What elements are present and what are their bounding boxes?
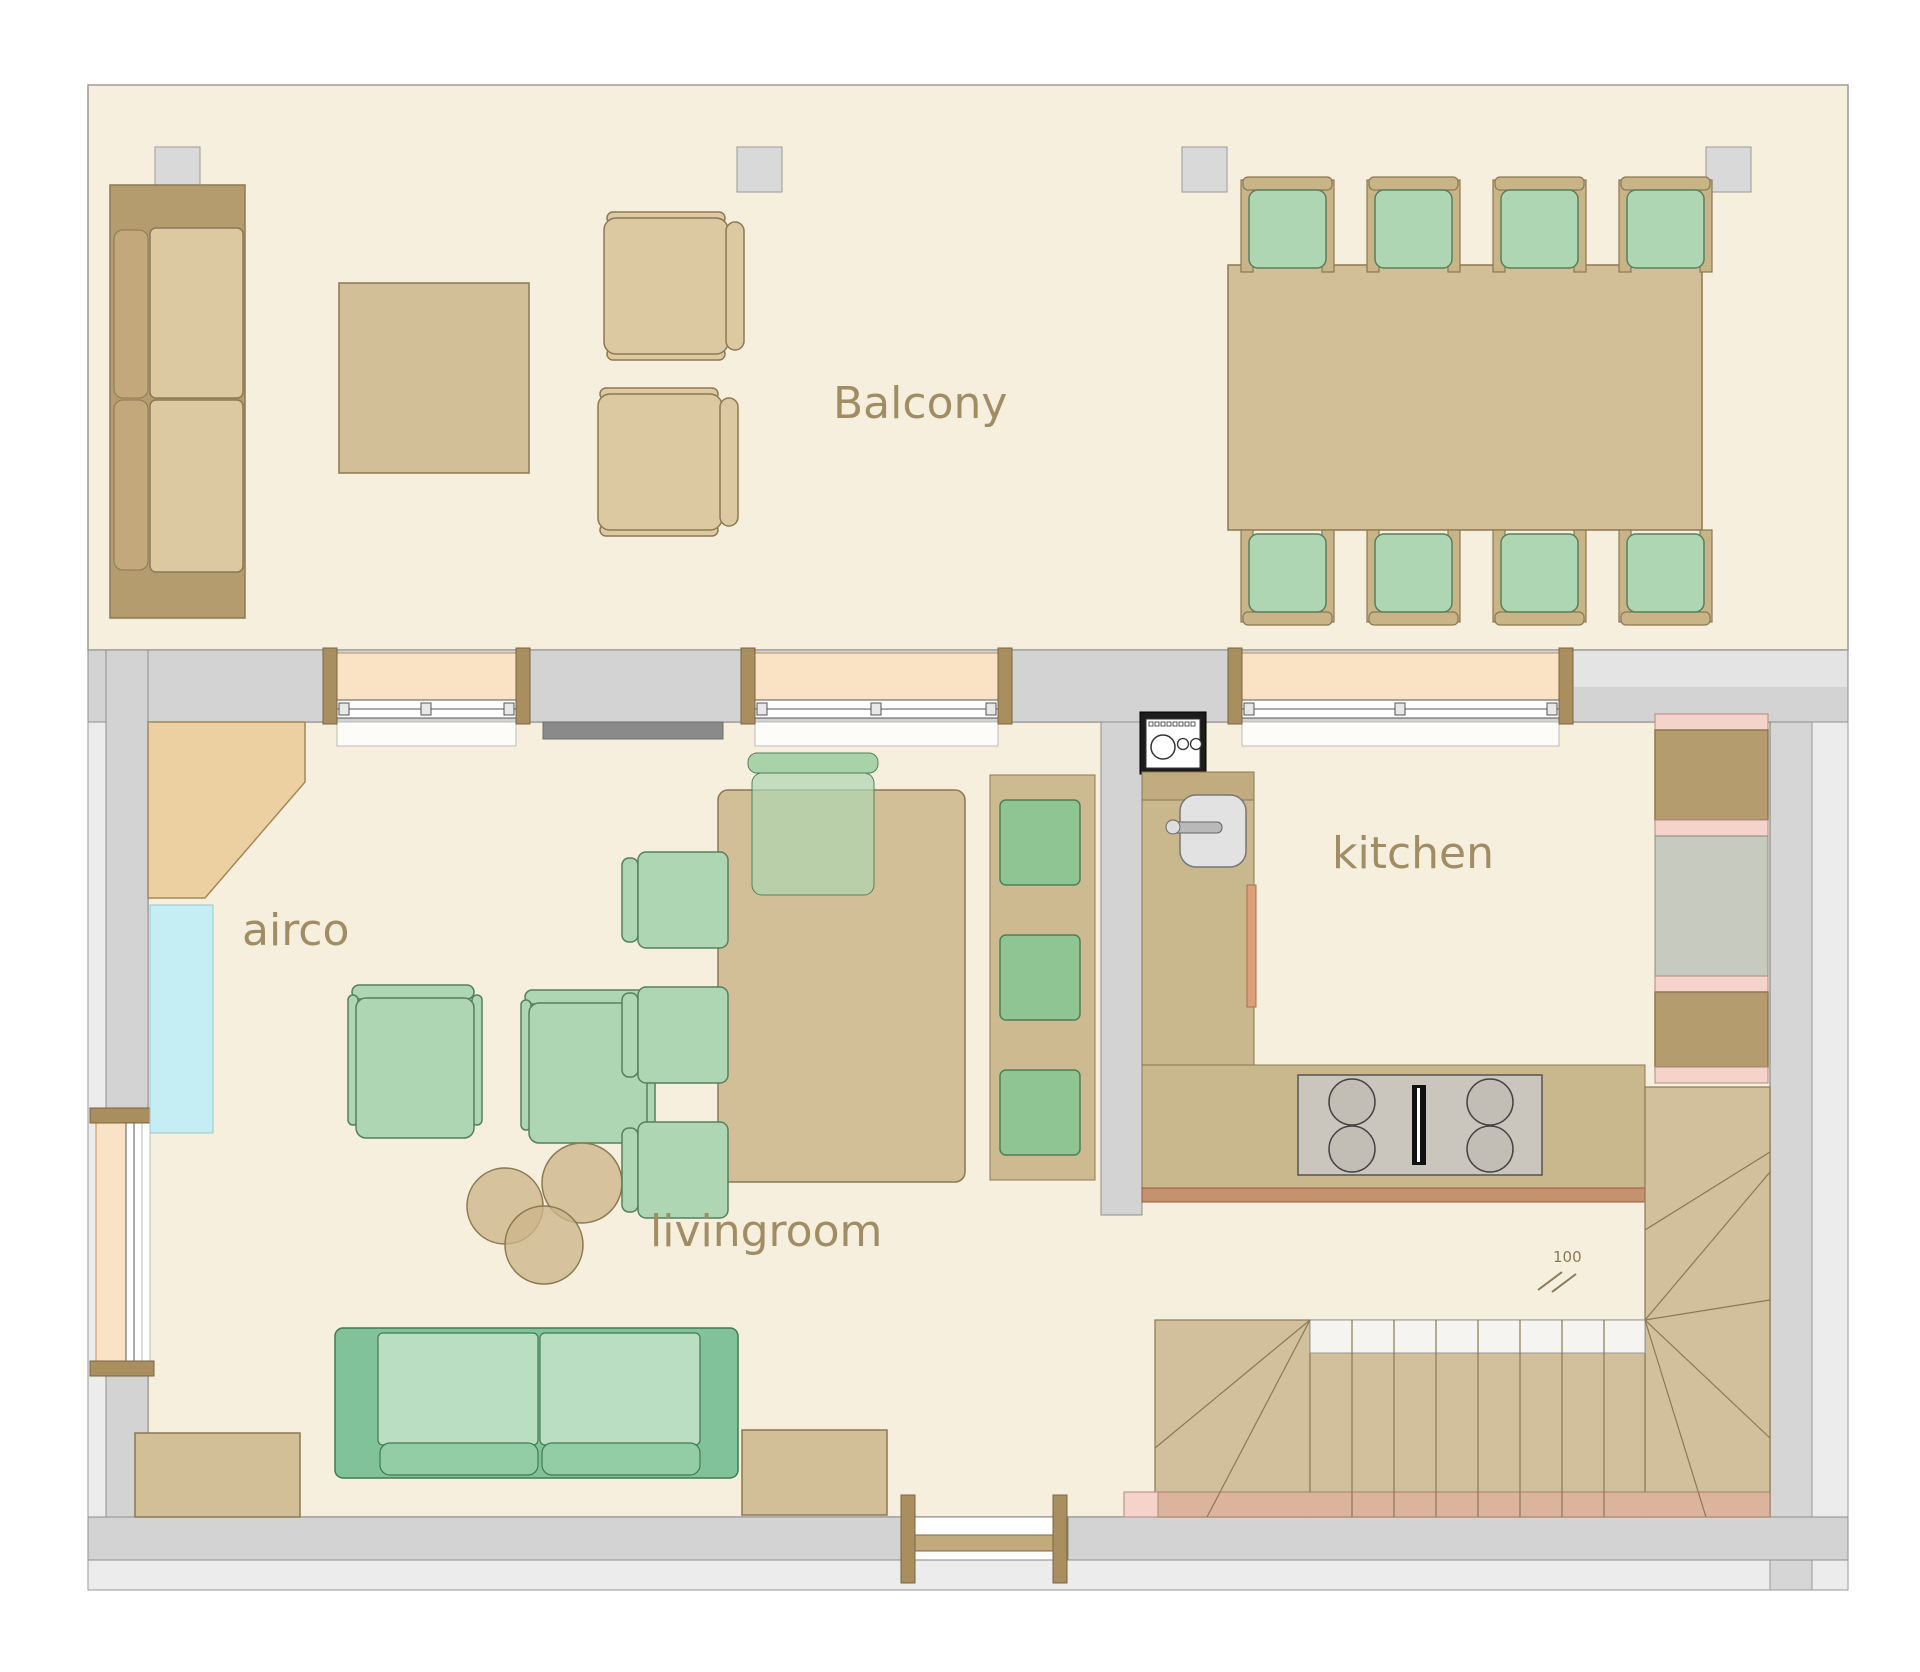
- airco-label: airco: [242, 905, 349, 956]
- chair-back: [622, 993, 638, 1077]
- glazing-connector: [871, 703, 881, 715]
- floor-plan-svg: 100 Balcony airco kitchen livingroom: [0, 0, 1920, 1672]
- window-sill-bar: [915, 1535, 1053, 1551]
- living-sofa: [335, 1328, 738, 1478]
- dot: [1149, 722, 1153, 726]
- dot: [1161, 722, 1165, 726]
- cabinet-shelf: [1655, 976, 1768, 992]
- chair-back: [1243, 177, 1332, 190]
- balcony-lounge-chair: [604, 212, 744, 360]
- chair-back: [1621, 177, 1710, 190]
- glazing-connector: [504, 703, 514, 715]
- fridge: [1655, 836, 1768, 976]
- dining-chair: [622, 852, 728, 948]
- chair-back: [748, 753, 878, 773]
- chair-back: [1243, 612, 1332, 625]
- counter-trim: [1247, 885, 1256, 1007]
- sofa-seat: [542, 1443, 700, 1475]
- bench-cushion: [1000, 1070, 1080, 1155]
- dining-chair: [1367, 530, 1460, 625]
- burner-icon: [1467, 1079, 1513, 1125]
- airco-unit: [150, 905, 213, 1133]
- stair-winders-left: [1155, 1320, 1310, 1517]
- round-table: [505, 1206, 583, 1284]
- kitchen-appliance: [1140, 712, 1206, 774]
- stair-flight-vertical: [1645, 1087, 1770, 1517]
- chair-seat: [598, 394, 722, 530]
- stove-grill-line: [1417, 1088, 1420, 1162]
- dining-chairs-left: [622, 852, 728, 1218]
- dot: [1179, 722, 1183, 726]
- balcony-sofa-cushion: [150, 400, 243, 572]
- burner-icon: [1467, 1126, 1513, 1172]
- window-threshold: [142, 1123, 150, 1361]
- window-top-1: [323, 648, 530, 746]
- dot: [1167, 722, 1171, 726]
- glazing-connector: [1244, 703, 1254, 715]
- dot: [1191, 722, 1195, 726]
- window-top-3: [1228, 648, 1573, 746]
- window-post: [323, 648, 337, 724]
- side-table: [742, 1430, 887, 1515]
- cabinet-shelf: [1655, 1067, 1768, 1083]
- window-sill: [755, 653, 998, 700]
- balcony-sofa-back: [114, 230, 148, 398]
- chair-seat: [356, 998, 474, 1138]
- chair-back: [720, 398, 738, 526]
- window-post: [1559, 648, 1573, 724]
- chair-seat: [752, 773, 874, 895]
- dining-chair: [1241, 177, 1334, 272]
- chair-seat: [1627, 534, 1704, 612]
- chair-back: [1369, 612, 1458, 625]
- glazing-connector: [339, 703, 349, 715]
- cabinet: [1655, 992, 1768, 1067]
- chair-seat: [638, 1122, 728, 1218]
- chair-seat: [1375, 190, 1452, 268]
- window-sill: [337, 653, 516, 700]
- chair-back: [622, 1128, 638, 1212]
- chair-seat: [638, 987, 728, 1083]
- balcony-sofa-cushion: [150, 228, 243, 398]
- livingroom-label: livingroom: [650, 1206, 882, 1257]
- bench-cushion: [1000, 800, 1080, 885]
- burner-icon: [1329, 1079, 1375, 1125]
- top-wall-light-strip: [1562, 651, 1847, 687]
- stair-level-marker: 100: [1553, 1248, 1582, 1266]
- kitchen-label: kitchen: [1332, 828, 1494, 879]
- window-threshold: [1242, 722, 1559, 746]
- window-threshold: [337, 722, 516, 746]
- kitchen-island: [1142, 1065, 1645, 1202]
- chair-seat: [1249, 190, 1326, 268]
- dial-icon: [1178, 739, 1189, 750]
- glazing-connector: [421, 703, 431, 715]
- right-wall-inner: [1770, 650, 1812, 1590]
- sofa-seat: [380, 1443, 538, 1475]
- window-sill: [96, 1123, 126, 1361]
- armchair: [348, 985, 482, 1138]
- window-post: [901, 1495, 915, 1583]
- stair-base-band: [1155, 1492, 1770, 1517]
- kitchen-counter: [1142, 772, 1256, 1065]
- island-edge: [1142, 1188, 1645, 1202]
- window-threshold: [755, 722, 998, 746]
- window-sill: [1242, 653, 1559, 700]
- balcony-label: Balcony: [833, 378, 1007, 429]
- window-post: [741, 648, 755, 724]
- bench-cushion: [1000, 935, 1080, 1020]
- low-cabinet: [135, 1433, 300, 1517]
- dining-chair: [622, 1122, 728, 1218]
- dining-chair: [1241, 530, 1334, 625]
- dial-icon: [1191, 739, 1202, 750]
- glazing-connector: [1395, 703, 1405, 715]
- glazing-connector: [757, 703, 767, 715]
- dining-chair: [1367, 177, 1460, 272]
- window-left: [90, 1108, 154, 1376]
- chair-back: [1495, 612, 1584, 625]
- stair-pink-marker: [1124, 1492, 1158, 1517]
- dot: [1185, 722, 1189, 726]
- balcony-sofa: [110, 185, 245, 618]
- chair-seat: [1375, 534, 1452, 612]
- dining-chair: [1493, 177, 1586, 272]
- dining-bench: [990, 775, 1095, 1180]
- dining-chair: [1619, 177, 1712, 272]
- window-post: [1053, 1495, 1067, 1583]
- window-post: [1228, 648, 1242, 724]
- window-post: [516, 648, 530, 724]
- balcony-square-table: [339, 283, 529, 473]
- dining-chair: [1619, 530, 1712, 625]
- column-icon: [1706, 147, 1751, 192]
- chair-seat: [1501, 190, 1578, 268]
- dining-chair: [1493, 530, 1586, 625]
- chair-seat: [638, 852, 728, 948]
- glazing-connector: [1547, 703, 1557, 715]
- chair-back: [1369, 177, 1458, 190]
- outer-wall-bottom: [88, 1560, 1848, 1590]
- sofa-cushion: [540, 1333, 700, 1445]
- left-wall-upper: [106, 650, 148, 1110]
- cabinet: [1655, 730, 1768, 820]
- burner-icon: [1329, 1126, 1375, 1172]
- chair-back: [352, 985, 474, 999]
- chair-seat: [1627, 190, 1704, 268]
- window-post: [998, 648, 1012, 724]
- faucet-base: [1166, 820, 1180, 834]
- floor-plan-canvas: 100 Balcony airco kitchen livingroom: [0, 0, 1920, 1672]
- kitchen-tall-cabinets: [1655, 714, 1768, 1083]
- chair-seat: [1501, 534, 1578, 612]
- chair-seat: [1249, 534, 1326, 612]
- chair-back: [622, 858, 638, 942]
- chair-back: [726, 222, 744, 350]
- dial-icon: [1151, 735, 1175, 759]
- chair-back: [1621, 612, 1710, 625]
- cabinet-shelf: [1655, 714, 1768, 730]
- window-top-2: [741, 648, 1012, 746]
- window-post: [90, 1361, 154, 1376]
- balcony-sofa-back: [114, 400, 148, 570]
- cabinet-shelf: [1655, 820, 1768, 836]
- chair-seat: [604, 218, 728, 354]
- sofa-cushion: [378, 1333, 538, 1445]
- glazing-connector: [986, 703, 996, 715]
- dining-chair: [622, 987, 728, 1083]
- partition-wall: [1101, 722, 1142, 1215]
- outer-wall-right: [1812, 650, 1848, 1590]
- dining-chair-top: [748, 753, 878, 895]
- column-icon: [737, 147, 782, 192]
- balcony-lounge-chair: [598, 388, 738, 536]
- dot: [1155, 722, 1159, 726]
- dot: [1173, 722, 1177, 726]
- tv: [543, 722, 723, 739]
- window-post: [90, 1108, 154, 1123]
- balcony-dining-table: [1228, 265, 1702, 530]
- column-icon: [1182, 147, 1227, 192]
- chair-back: [1495, 177, 1584, 190]
